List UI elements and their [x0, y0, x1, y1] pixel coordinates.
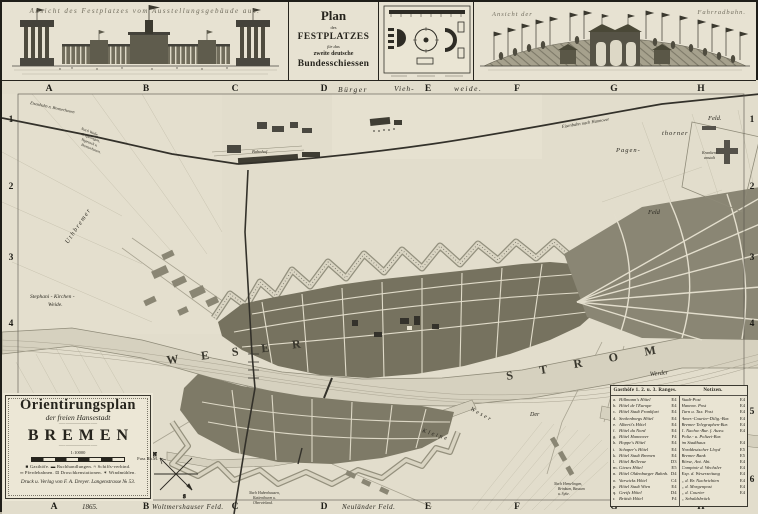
notizen-list: Stadt-Post E4 Hannov. Post E4 Turn u. Ta… — [680, 396, 748, 507]
svg-text:A: A — [51, 502, 58, 512]
foreground-figures — [59, 67, 227, 69]
title-cartouche: Orientirungsplan der freien Hansestadt —… — [5, 395, 151, 499]
svg-text:3: 3 — [9, 253, 14, 263]
legend-symbols-line1: ■ Gasthöfe. ▬ Buchhandlungen. ≈ Schiffs-… — [6, 464, 150, 470]
svg-text:H: H — [697, 84, 705, 94]
viehweide-label-1: Vieh- — [394, 84, 415, 93]
year-label: 1865. — [82, 503, 98, 511]
svg-text:C: C — [232, 502, 239, 512]
pagenthorner-label-2: thorner — [662, 130, 689, 137]
svg-text:6: 6 — [750, 475, 755, 485]
svg-text:A: A — [46, 84, 53, 94]
svg-text:F: F — [514, 84, 520, 94]
der-label: Der — [529, 412, 540, 418]
svg-text:3: 3 — [750, 253, 755, 263]
svg-text:1: 1 — [750, 115, 755, 125]
gate-pavilion — [588, 14, 642, 66]
svg-text:F: F — [514, 502, 520, 512]
neulaender-feld-label: Neuländer Feld. — [341, 503, 395, 511]
publisher-imprint: Druck u. Verlag von F. A. Dreyer. Langen… — [6, 479, 150, 485]
buergerweide-label-1: Bürger — [338, 85, 368, 94]
bahnhof-label: Bahnhof — [252, 149, 268, 154]
svg-text:2: 2 — [750, 182, 755, 192]
svg-text:C: C — [232, 84, 239, 94]
stephani-weide-label-1: Stephani - Kirchen - — [30, 294, 75, 300]
top-strip: Ansicht des Festplatzes vom Ausstellungs… — [2, 2, 756, 81]
festplatz-view-caption: Ansicht des Festplatzes vom Ausstellungs… — [2, 7, 288, 15]
svg-text:E: E — [425, 84, 431, 94]
pagenthorner-label-1: Pagen- — [615, 147, 641, 154]
plan-title-line3: FESTPLATZES — [289, 32, 378, 42]
svg-text:2: 2 — [9, 182, 14, 192]
feld-ne-label: Feld. — [707, 115, 722, 122]
left-gate-pylon — [20, 8, 54, 66]
svg-text:4: 4 — [9, 319, 14, 329]
svg-text:B: B — [143, 502, 150, 512]
svg-text:G: G — [610, 84, 618, 94]
fahrradbahn-caption-left: Ansicht der — [492, 11, 533, 18]
scale-bar: Fuss Rh.M. — [31, 457, 125, 462]
directory-header: Gasthöfe 1. 2. u. 3. Ranges. Notizen. — [611, 386, 747, 396]
scale-ratio: 1:10000 — [6, 450, 150, 456]
plan-title-line6: Bundesschiessen — [289, 59, 378, 69]
panel-festplatz-view: Ansicht des Festplatzes vom Ausstellungs… — [2, 2, 289, 80]
fahrradbahn-caption-right: Fahrradbahn. — [697, 9, 746, 16]
scale-unit: Fuss Rh.M. — [137, 456, 158, 461]
buergerweide-field — [332, 94, 542, 159]
plan-title-line4: für das — [289, 44, 378, 49]
svg-text:Kattenthurm u.: Kattenthurm u. — [252, 496, 276, 500]
panel-plan-title: Plan des FESTPLATZES für das zweite deut… — [289, 2, 379, 80]
svg-text:1: 1 — [9, 115, 14, 125]
ornament-bottom: —·—————·— — [6, 444, 150, 449]
directory-box: Gasthöfe 1. 2. u. 3. Ranges. Notizen. a.… — [610, 385, 748, 507]
svg-text:B: B — [143, 84, 150, 94]
map-title: Orientirungsplan — [6, 398, 150, 413]
svg-text:D: D — [321, 84, 328, 94]
map-subtitle: der freien Hansestadt — [6, 413, 150, 422]
svg-text:4: 4 — [750, 319, 755, 329]
map-sheet: N S A B C D E F G H A B C D E F G H 1 2 … — [0, 0, 758, 512]
plan-title-line2: des — [289, 25, 378, 30]
svg-text:5: 5 — [750, 407, 755, 417]
gasthoefe-header: Gasthöfe 1. 2. u. 3. Ranges. — [611, 386, 679, 395]
gasthof-row: r. British Hôtel F4 — [613, 496, 677, 502]
feld-e-label: Feld — [647, 209, 661, 216]
plan-title-line5: zweite deutsche — [289, 51, 378, 57]
gasthoefe-list: a. Hillmann's Hôtel E4 b. Hôtel de l'Eur… — [611, 396, 680, 507]
woltmershauser-feld-label: Woltmershauser Feld. — [152, 503, 224, 511]
festplatz-plan-drawing — [379, 2, 474, 80]
market-square — [407, 326, 412, 330]
svg-text:Obervieland.: Obervieland. — [253, 501, 273, 505]
city-name: BREMEN — [6, 427, 150, 444]
compass-south-label: S — [183, 495, 186, 500]
plan-title-line1: Plan — [289, 8, 378, 24]
legend-symbols-line2: ═ Pferdebahnen. ⊡ Droschkenstationen. ✶ … — [6, 470, 150, 476]
krankenanstalt-label-2: anstalt — [704, 155, 716, 160]
svg-text:E: E — [425, 502, 431, 512]
right-gate-pylon — [236, 8, 270, 66]
panel-fahrradbahn-view: Ansicht der Fahrradbahn. — [474, 2, 756, 80]
notizen-header: Notizen. — [679, 386, 747, 395]
svg-text:D: D — [321, 502, 328, 512]
notiz-row: „ Sebaldsbrück — [682, 496, 746, 502]
stephani-weide-label-2: Weide. — [48, 302, 63, 308]
svg-text:u. Syke.: u. Syke. — [558, 492, 570, 496]
panel-festplatz-plan — [379, 2, 474, 80]
viehweide-label-2: weide. — [454, 84, 482, 93]
